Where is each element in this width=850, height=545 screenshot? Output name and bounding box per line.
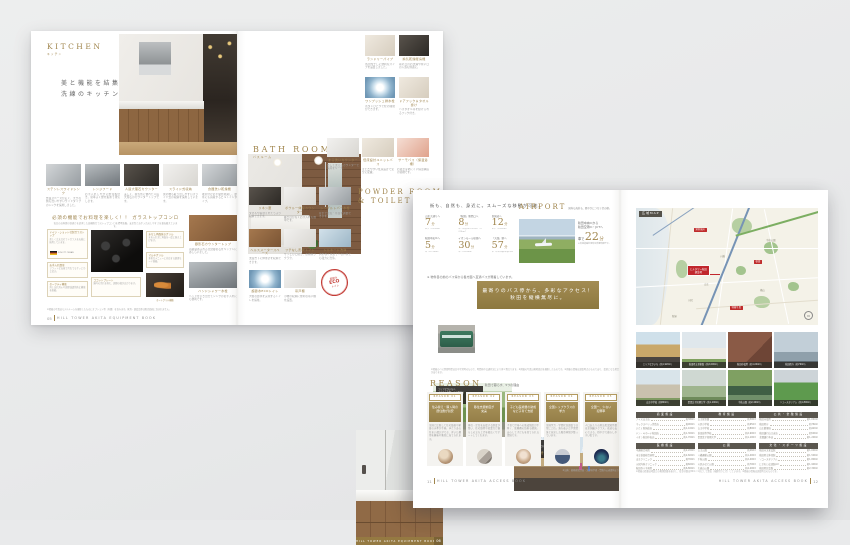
facility-name: 北都銀行本店 (759, 437, 773, 440)
stat-cell: 新国道へ12分徒歩（約950m） (492, 215, 522, 234)
map-area-label: 八橋 (720, 254, 725, 258)
disclaimer-note: ※掲載の写真はモデルルームを撮影したものにオプション等（有償）を含みます。家具・… (47, 308, 347, 311)
callout-body: 美しく丈夫なセランガラスを天板に採用しています。 (50, 238, 86, 250)
route-line2: 秋田空港IC・JCTへ (578, 225, 619, 229)
tile-body: タオルや着替えをたっぷり収納できます。 (249, 212, 281, 222)
tile-caption: リネン庫 (249, 207, 281, 211)
dotted-leader (653, 460, 685, 461)
facility-name: 秋田市役所 (759, 419, 771, 422)
reason-heading: 全国一、少ない 犯罪率 (585, 402, 617, 422)
brochure-spread-access: 街も、自然も、身近に。スムーズな移動が可能。 山王大通りへ7分徒歩（約530m）… (413, 190, 828, 508)
reason-body: 人口あたりの刑法犯認知件数は全国最少クラス。夜道も安心できる、穏やかで暮らしやす… (585, 424, 617, 447)
reason-cards: REASON 01 住み替え・購入時の 居住費が割安 全国と比較して住宅価格や家… (427, 392, 619, 466)
tile-body: 継ぎ目がなくお手入れも簡単です。 (284, 216, 316, 226)
page-number: 06 (434, 537, 443, 545)
dotted-leader (770, 425, 809, 426)
heater-photo (399, 35, 429, 56)
feature-tile: シングルレバー水栓 片手で温度・水量を調節できます。 (319, 187, 351, 226)
stat-value: 8 (458, 218, 464, 228)
facility-name: 山王郵便局 (759, 428, 771, 431)
thermo-bath-diagram (397, 138, 429, 157)
tile-caption: ハンドシャワー水栓 (189, 290, 237, 294)
airport-title: AIRPORT (519, 203, 566, 211)
property-pointer (710, 274, 720, 275)
reason-photo (555, 449, 570, 464)
area-photo: エリアなかいち（約1,920m） (636, 332, 680, 368)
tile-caption: ドアフック＆タオル掛け (399, 100, 429, 108)
feature-tile: フチなし形状トイレ サッとひと拭き、お掃除ラクラク。 (284, 229, 316, 268)
storage-photo (163, 164, 198, 186)
facility-distance: 約800m (747, 428, 756, 431)
tile-body: 片手で温度・水量を調節できます。 (319, 212, 351, 222)
tile-body: 作業スペースが広く、大きな鍋も洗いやすいワイドタイプのシンクを採用しました。 (46, 197, 81, 211)
area-map: 泉外旭川 秋田 羽後牛島 ヒルタワー秋田 建設地 千秋公園 八橋 山王 楢山 川… (636, 208, 818, 325)
dotted-leader (776, 456, 805, 457)
stat-value: 57 (492, 241, 504, 251)
reason-card: REASON 04 全国トップクラスの 学力 全国学力・学習状況調査では常に上位… (544, 392, 580, 466)
feature-tile: 低床設計ユニットバス またぎやすい低床設計で安全に配慮。 (362, 138, 394, 176)
facility-distance: 約1,040m (807, 419, 818, 422)
photo-caption: 秋田市役所（約1,040m） (728, 362, 772, 369)
reason-number: REASON 03 (507, 394, 539, 401)
property-label: 建設地 (690, 271, 707, 274)
tile-body: 渦を巻く水流で少ない水でも強力に洗浄。 (319, 253, 351, 263)
shower-faucet-photo (189, 262, 237, 288)
bath-feature-tiles-bottom: まる洗いカウンター 外して洗えるカウンターで清潔をキープ。 低床設計ユニットバス… (327, 138, 429, 176)
facility-table: 公共・金融施設 秋田市役所約1,040m 秋田県庁約760m 山王郵便局約420… (759, 412, 818, 440)
tile-caption: 超節水ECOトイレ (249, 290, 281, 294)
granite-counter-photo (189, 215, 237, 241)
tile-caption: サーモバス（保温浴槽） (397, 159, 429, 167)
page-number: 05 (47, 316, 52, 321)
reason-title: REASON (430, 379, 482, 388)
tile-caption: ボウル一体型カウンター (284, 207, 316, 215)
cabinet-photo (284, 270, 316, 288)
facility-name: 山王クリニック (636, 459, 652, 462)
tornado-flush-photo (249, 270, 281, 288)
dotted-leader (708, 460, 744, 461)
bath-feature-tiles: ランドリーパイプ 浴室内干しに便利なパイプを設置しました。 換気乾燥暖房機 雨の… (365, 35, 429, 119)
area-photo: 秋田市役所（約1,040m） (728, 332, 772, 368)
stove-callout: お手入れ簡単 フラットな天板で汚れてもサッとひと拭き。 (47, 262, 88, 278)
reason-photo (438, 449, 453, 464)
stove-callout: ドイツ・ショット社製ガラストップ 美しく丈夫なセランガラスを天板に採用しています… (47, 229, 88, 259)
reason-card: REASON 03 子ども医療費の助成 など子育て支援 子育て世帯への助成制度が… (505, 392, 541, 466)
dotted-leader (776, 452, 805, 453)
footer-divider (54, 315, 55, 321)
reason-number: REASON 02 (468, 394, 500, 401)
dotted-leader (772, 420, 806, 421)
stat-cell: 「大曲」駅へ57分車（秋田自動車道利用） (492, 237, 522, 256)
airport-note: ※高速道路利用時の所要時間です。 (578, 243, 619, 246)
reason-subtitle: 秋田で暮らす、5つの理由 (485, 383, 520, 387)
kitchen-section-title: KITCHEN キッチン (47, 42, 102, 56)
facility-distance: 約1,800m (807, 459, 818, 462)
facility-name: 聖霊女子短期大学 (698, 437, 716, 440)
page-number: 11 (427, 479, 432, 484)
footer-divider (810, 478, 811, 484)
dotted-leader (712, 456, 744, 457)
facility-name: 山王保育園 (698, 419, 710, 422)
tile-caption: トルネード洗浄 (319, 249, 351, 253)
stat-unit: 分 (432, 221, 435, 226)
table-header: 商業施設 (636, 412, 695, 418)
airport-subtitle: 国内も海外も、軽やかにつなぐ空の便。 (568, 206, 611, 210)
facility-name: イオン秋田中央店 (636, 437, 654, 440)
map-area-label: 千秋公園 (766, 238, 776, 242)
page-number: 12 (813, 479, 818, 484)
stove-callout: セーフティ機能 消し忘れ消火や調理油過熱防止機能を搭載。 (47, 281, 88, 297)
tile-caption: 人造大理石カウンター (124, 188, 159, 192)
photo-caption: エリアなかいち（約1,920m） (636, 362, 680, 369)
callout-body: フラットな天板で汚れてもサッとひと拭き。 (50, 267, 86, 275)
map-area-label: 新屋 (672, 314, 677, 318)
photo-caption: 山王中学校（約800m） (636, 400, 680, 407)
stat-unit: 分 (465, 221, 468, 226)
tile-body: お湯が冷めにくい保温構造の浴槽です。 (397, 168, 429, 176)
area-photo-grid: エリアなかいち（約1,920m） 秋田県立美術館（約2,000m） 秋田市役所（… (636, 332, 818, 406)
reason-source-note: ※出典：総務省統計局・文部科学省・警察庁公表資料より (427, 468, 619, 472)
bathroom-title: BATH ROOM (253, 145, 332, 154)
car-prefix: 車で (578, 236, 584, 241)
reason-card: REASON 02 移住支援制度が 充実 移住・定住を支援する制度が整い、住宅取… (466, 392, 502, 466)
facility-name: ソユースタジアム (759, 459, 777, 462)
facility-table: 教育施設 山王保育園約300m 川尻小学校約650m 山王中学校約800m 秋田… (698, 412, 757, 440)
tile-body: 後片付けの手間を軽減し、節水にも貢献するビルトインタイプ。 (202, 193, 237, 207)
dotted-leader (651, 420, 685, 421)
tile-body: ボタンひとつで栓の開閉ができます。 (365, 105, 395, 116)
reason-body: 全国学力・学習状況調査では常に上位。落ち着いた学習環境と充実した教育体制が整って… (546, 424, 578, 447)
tile-caption: 食器洗い乾燥機 (202, 188, 237, 192)
dishwasher-photo (202, 164, 237, 186)
tile-caption: シングルレバー水栓 (319, 207, 351, 211)
bowl-counter-photo (284, 187, 316, 205)
facility-name: 千秋公園 (698, 459, 707, 462)
park-area (754, 296, 770, 308)
range-hood-photo (85, 164, 120, 186)
kitchen-title: KITCHEN (47, 42, 102, 51)
tile-caption: 換気乾燥暖房機 (399, 58, 429, 62)
tile-caption: まる洗いカウンター (327, 159, 359, 163)
wood-cabinets (119, 109, 204, 142)
area-photo: 山王中学校（約800m） (636, 370, 680, 406)
dotted-leader (779, 434, 808, 435)
facility-name: 山王中学校 (698, 428, 710, 431)
stove-photo (91, 230, 143, 272)
facility-distance: 約350m (686, 459, 695, 462)
property-marker: ヒルタワー秋田 建設地 (688, 266, 709, 275)
dotted-leader (774, 438, 806, 439)
bus-photo (438, 325, 475, 353)
table-header: 公共・金融施設 (759, 412, 818, 418)
kitchen-side-column: 御影石カウンタートップ 高級感あふれる天然御影石をキッチンにあしらいました。 ハ… (189, 215, 237, 306)
kitchen-main-photo (119, 34, 237, 155)
map-area-label: 楢山 (760, 288, 765, 292)
stat-unit: 分 (504, 244, 507, 249)
reason-heading: 移住支援制度が 充実 (468, 402, 500, 422)
flag-label: SCHOTT CERAN (58, 252, 74, 254)
stat-cell: 「秋田」駅西口へ8分車（県道26号線利用・約2.9km） (458, 215, 488, 234)
lever-faucet-photo (319, 187, 351, 205)
photo-caption: 千秋公園（約2,400m） (728, 400, 772, 407)
stat-note: 徒歩（約530m） (425, 228, 455, 234)
tile-caption: レンジフード (85, 188, 120, 192)
facility-table: 医療施設 中通総合病院約2,200m 市立秋田総合病院約2,600m 山王クリニ… (636, 443, 695, 471)
facility-distance: 約1,100m (745, 437, 756, 440)
dotted-leader (655, 456, 682, 457)
stove-callout: 水なし両面焼きグリル 水を入れずに両面を一度に焼き上げます。 (146, 231, 184, 248)
photo-caption-bar: HILL TOWER AKITA EQUIPMENT BOOK 06 (356, 537, 443, 545)
callout-body: 水を入れずに両面を一度に焼き上げます。 (149, 236, 182, 244)
feature-tile: 吊戸棚 小物の収納に便利な吊戸棚を設置。 (284, 270, 316, 305)
rimless-toilet-photo (284, 229, 316, 247)
tile-body: 洗面台下に体重計を収納できます。 (249, 257, 281, 267)
grill-caption: オートグリル機能 (146, 298, 184, 302)
kitchen-feature-tiles: ステンレスワイドシンク 作業スペースが広く、大きな鍋も洗いやすいワイドタイプのシ… (46, 164, 237, 211)
table-header: 文化・スポーツ施設 (759, 443, 818, 449)
book-title: HILL TOWER AKITA EQUIPMENT BOOK (356, 540, 434, 543)
map-title-label: 広域MAP (639, 211, 662, 217)
stat-unit: 分 (432, 244, 435, 249)
photo-caption: 聖霊女子短期大学（約1,100m） (682, 400, 726, 407)
area-photo: 秋田県立美術館（約2,000m） (682, 332, 726, 368)
feature-tile: 食器洗い乾燥機 後片付けの手間を軽減し、節水にも貢献するビルトインタイプ。 (202, 164, 237, 211)
facility-distance: 約1,200m (807, 437, 818, 440)
tile-body: 小物の収納に便利な吊戸棚を設置。 (284, 295, 316, 305)
facility-name: 秋田市文化会館 (759, 450, 775, 453)
stat-value: 7 (425, 218, 431, 228)
reason-number: REASON 05 (585, 394, 617, 401)
book-title: HILL TOWER AKITA ACCESS BOOK (719, 479, 808, 483)
facility-distance: 約2,400m (745, 459, 756, 462)
sink-photo (46, 164, 81, 186)
footer-divider (434, 478, 435, 484)
callout-body: 多彩なメニューに対応する調理モード搭載。 (149, 257, 182, 265)
facility-distance: 約1,100m (684, 428, 695, 431)
dotted-leader (778, 460, 805, 461)
map-area-label: 山王 (704, 282, 709, 286)
callout-title: ドイツ・ショット社製ガラストップ (50, 231, 86, 238)
reason-heading: 住み替え・購入時の 居住費が割安 (429, 402, 461, 422)
bathroom-subtitle: バスルーム (253, 155, 332, 159)
park-area (788, 282, 799, 291)
counter-top (119, 101, 204, 109)
tile-body: 雨の日のお洗濯や寒い日の入浴も快適に。 (399, 63, 429, 74)
brochure-spread-equipment: KITCHEN キッチン 美と機能を結集した 洗練のキッチン。 ステンレスワイド… (31, 31, 443, 325)
stamp-line: トイレ (331, 284, 339, 289)
callout-body: 消し忘れ消火や調理油過熱防止機能を搭載。 (50, 286, 86, 294)
feature-tile: スライド式収納 奥の物も取り出しやすいスライド式の収納を採用しています。 (163, 164, 198, 211)
stat-note: 車（約1.8km） (425, 251, 455, 257)
tile-body: またぎやすい低床設計で安全に配慮。 (362, 168, 394, 176)
dotted-leader (772, 429, 808, 430)
stat-value: 30 (458, 241, 470, 251)
dotted-leader (717, 438, 744, 439)
facility-name: 中通総合病院 (636, 450, 650, 453)
mirror-seam (385, 430, 386, 490)
tile-body: 大幅な節水を実現するトイレを採用。 (249, 295, 281, 305)
table-header: 公園 (698, 443, 757, 449)
facility-name: 山王公園 (698, 450, 707, 453)
dotted-leader (658, 465, 685, 466)
stat-note: 車（秋田自動車道利用） (492, 251, 522, 257)
tile-body: サッとひと拭き、お掃除ラクラク。 (284, 253, 316, 263)
map-fine-print: ※掲載の距離は地図上の概測距離を表示し、徒歩分数は80m＝1分として算出（端数切… (636, 470, 818, 473)
facility-name: いとく新国道店 (636, 428, 652, 431)
stat-value: 5 (425, 241, 431, 251)
dotted-leader (708, 452, 747, 453)
reason-body: 子育て世帯への助成制度が手厚く、医療費の負担も軽減。安心して子どもを育てられる環… (507, 424, 539, 447)
design-mockup-stage: KITCHEN キッチン 美と機能を結集した 洗練のキッチン。 ステンレスワイド… (0, 0, 850, 520)
station-marker: 羽後牛島 (730, 306, 743, 310)
stat-note: 車（約9.8km） (458, 251, 488, 257)
feature-tile: ワンプッシュ排水栓 ボタンひとつで栓の開閉ができます。 (365, 77, 395, 120)
dotted-leader (710, 429, 746, 430)
tile-caption: 低床設計ユニットバス (362, 159, 394, 167)
page-footer: 05 HILL TOWER AKITA EQUIPMENT BOOK (47, 315, 156, 321)
burners (91, 230, 143, 272)
reason-number: REASON 04 (546, 394, 578, 401)
tile-body: ヘッドを引き出せてシンクのお手入れにも便利です。 (189, 295, 237, 306)
dotted-leader (780, 465, 806, 466)
facility-table: 公園 山王公園約260m 八橋運動公園約1,400m 千秋公園約2,400m 川… (698, 443, 757, 471)
bathroom-section-title: BATH ROOM バスルーム (253, 145, 332, 159)
dotted-leader (660, 425, 685, 426)
photo-caption: ソユースタジアム（約1,800m） (774, 400, 818, 407)
cleaning-photo (319, 229, 351, 247)
airplane (535, 243, 552, 247)
banner-line2: 秋田を縦横無尽に。 (477, 295, 599, 302)
wood-floor (119, 142, 237, 155)
airport-section-title: AIRPORT 国内も海外も、軽やかにつなぐ空の便。 (519, 203, 619, 211)
stat-cell: 秋田中央ICへ5分車（約1.8km） (425, 237, 455, 256)
linen-photo (249, 187, 281, 205)
tile-body: 奥の物も取り出しやすいスライド式の収納を採用しています。 (163, 193, 198, 207)
stat-cell: イオンモール秋田へ30分車（約9.8km） (458, 237, 488, 256)
bath-light (273, 158, 282, 167)
tile-caption: 吊戸棚 (284, 290, 316, 294)
low-floor-photo (362, 138, 394, 157)
park-area (676, 260, 688, 278)
access-banner: 最寄りのバス停から、多彩なアクセス！ 秋田を縦横無尽に。 (477, 281, 599, 309)
facility-tables: 商業施設 ナイス山王店約380m マックスバリュ茨島店約900m いとく新国道店… (636, 412, 818, 471)
tile-caption: スライド式収納 (163, 188, 198, 192)
tile-caption: ランドリーパイプ (365, 58, 395, 62)
tile-body: 美しく、耐久性に優れた人造大理石のカウンタートップです。 (124, 193, 159, 207)
airport-photo (519, 219, 575, 263)
reason-number: REASON 01 (429, 394, 461, 401)
area-photo: 千秋公園（約2,400m） (728, 370, 772, 406)
reason-body: 全国と比較して住宅価格や家賃の水準が手頃。ゆとりある住まい選びができ、浮いた費用… (429, 424, 461, 447)
powder-title-line2: & TOILET (358, 197, 412, 205)
banner-line1: 最寄りのバス停から、多彩なアクセス！ (477, 288, 599, 295)
reason-card: REASON 01 住み替え・購入時の 居住費が割安 全国と比較して住宅価格や家… (427, 392, 463, 466)
access-fine-print: ※掲載のバス所要時間は日中平常時のもので、時間帯や交通状況により多少異なります。… (431, 368, 619, 377)
stat-unit: 分 (504, 221, 507, 226)
photo-caption: 秋田県立美術館（約2,000m） (682, 362, 726, 369)
photo-caption: 秋田県庁（約760m） (774, 362, 818, 369)
feature-tile: ランドリーパイプ 浴室内干しに便利なパイプを設置しました。 (365, 35, 395, 74)
reason-photo (594, 449, 609, 464)
kitchen-subtitle: キッチン (47, 52, 102, 56)
stat-note: 徒歩（約950m） (492, 228, 522, 234)
dotted-leader (712, 434, 744, 435)
feature-tile: サーモバス（保温浴槽） お湯が冷めにくい保温構造の浴槽です。 (397, 138, 429, 176)
tile-body: 外して洗えるカウンターで清潔をキープ。 (327, 164, 359, 172)
park-area (736, 266, 746, 275)
drawer-line (356, 522, 443, 523)
tile-body: バスタオル等を掛けられるフック付き。 (399, 108, 429, 119)
station-marker: 泉外旭川 (694, 228, 707, 232)
laundry-pipe-photo (365, 35, 395, 56)
bus-stop-note: ※ 物件目の前のバス停から各方面へ直通バスが発着しています。 (427, 275, 514, 279)
stove-sub: 毎日のお料理の快適さを追求した高機能ガラストップコンロを標準装備。安全性とお手入… (53, 222, 178, 228)
airport-unit: 分 (599, 236, 604, 242)
feature-tile: ボウル一体型カウンター 継ぎ目がなくお手入れも簡単です。 (284, 187, 316, 226)
facility-table: 文化・スポーツ施設 秋田市文化会館約1,000m 秋田県立体育館約1,500m … (759, 443, 818, 471)
feature-tile: ヘルスメータースペース 洗面台下に体重計を収納できます。 (249, 229, 281, 268)
stat-note: 車（県道26号線利用・約2.9km） (458, 228, 488, 234)
page-footer: 11 HILL TOWER AKITA ACCESS BOOK (427, 478, 526, 484)
dotted-leader (710, 420, 746, 421)
dotted-leader (715, 465, 747, 466)
stat-value: 12 (492, 218, 504, 228)
reason-card: REASON 05 全国一、少ない 犯罪率 人口あたりの刑法犯認知件数は全国最少… (583, 392, 619, 466)
compass-icon: N (804, 311, 813, 320)
tile-caption: ワンプッシュ排水栓 (365, 100, 395, 104)
pendant-lights (204, 36, 235, 72)
book-title: HILL TOWER AKITA EQUIPMENT BOOK (57, 316, 156, 320)
table-header: 教育施設 (698, 412, 757, 418)
page-footer: HILL TOWER AKITA ACCESS BOOK 12 (636, 478, 818, 484)
feature-tile: まる洗いカウンター 外して洗えるカウンターで清潔をキープ。 (327, 138, 359, 176)
tile-body: 浴室内干しに便利なパイプを設置しました。 (365, 63, 395, 74)
reason-photo (477, 449, 492, 464)
facility-distance: 約420m (809, 428, 818, 431)
range-hood-shape (139, 42, 171, 75)
dotted-leader (651, 452, 683, 453)
facility-distance: 約1,000m (807, 450, 818, 453)
counter-photo (327, 138, 359, 157)
tile-caption: フチなし形状トイレ (284, 249, 316, 253)
dotted-leader (655, 438, 682, 439)
scale-space-photo (249, 229, 281, 247)
travel-time-stats: 山王大通りへ7分徒歩（約530m） 「秋田」駅西口へ8分車（県道26号線利用・約… (425, 215, 522, 257)
map-area-label: 川尻 (688, 298, 693, 302)
reason-heading: 子ども医療費の助成 など子育て支援 (507, 402, 539, 422)
reason-heading: 全国トップクラスの 学力 (546, 402, 578, 422)
feature-tile: 換気乾燥暖房機 雨の日のお洗濯や寒い日の入浴も快適に。 (399, 35, 429, 74)
counter-photo (124, 164, 159, 186)
german-flag-icon (50, 251, 57, 256)
book-title: HILL TOWER AKITA ACCESS BOOK (437, 479, 526, 483)
towel (362, 465, 366, 474)
feature-tile: リネン庫 タオルや着替えをたっぷり収納できます。 (249, 187, 281, 226)
facility-distance: 約260m (747, 450, 756, 453)
door-hook-photo (399, 77, 429, 98)
dotted-leader (660, 434, 683, 435)
facility-distance: 約1,700m (684, 437, 695, 440)
facility-distance: 約300m (747, 419, 756, 422)
tile-caption: 御影石カウンタートップ (189, 243, 237, 247)
feature-tile: ステンレスワイドシンク 作業スペースが広く、大きな鍋も洗いやすいワイドタイプのシ… (46, 164, 81, 211)
tile-body: お手入れしやすい整流板付き。効率よく煙を集めて排気します。 (85, 193, 120, 207)
reason-photo (516, 449, 531, 464)
grill-dish-photo (146, 273, 184, 297)
reason-section-title: REASON 秋田で暮らす、5つの理由 (430, 379, 519, 388)
bus-windows (442, 335, 470, 339)
facility-distance: 約380m (686, 419, 695, 422)
